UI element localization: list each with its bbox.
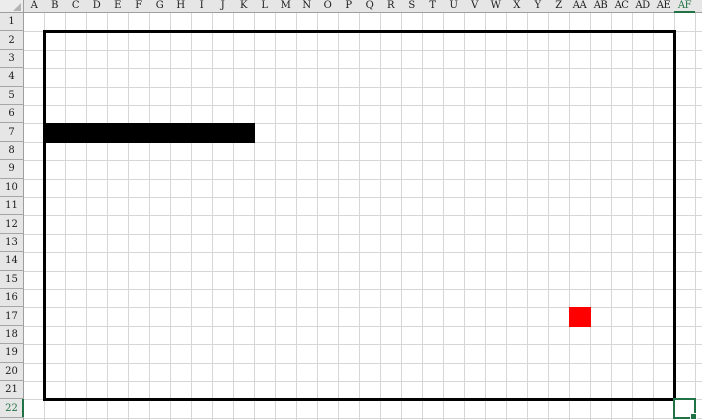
- gridline-horizontal: [24, 234, 702, 235]
- gridline-vertical: [590, 13, 591, 420]
- gridline-vertical: [107, 13, 108, 420]
- column-header-E[interactable]: E: [107, 0, 129, 13]
- gridline-vertical: [548, 13, 549, 420]
- snake-cell-F7[interactable]: [128, 123, 150, 142]
- column-header-G[interactable]: G: [149, 0, 171, 13]
- spreadsheet: ABCDEFGHIJKLMNOPQRSTUVWXYZAAABACADAEAF 1…: [0, 0, 702, 420]
- row-header-7[interactable]: 7: [0, 123, 24, 141]
- gridline-vertical: [254, 13, 255, 420]
- gridline-vertical: [359, 13, 360, 420]
- gridline-vertical: [212, 13, 213, 420]
- column-header-C[interactable]: C: [65, 0, 87, 13]
- gridline-horizontal: [24, 344, 702, 345]
- gridline-vertical: [611, 13, 612, 420]
- gridline-horizontal: [24, 160, 702, 161]
- gridline-horizontal: [24, 399, 702, 400]
- row-header-12[interactable]: 12: [0, 215, 24, 233]
- gridline-vertical: [632, 13, 633, 420]
- gridline-vertical: [170, 13, 171, 420]
- selected-cell-AF22[interactable]: [673, 398, 696, 418]
- column-header-J[interactable]: J: [212, 0, 234, 13]
- row-header-10[interactable]: 10: [0, 179, 24, 197]
- gridline-vertical: [422, 13, 423, 420]
- gridline-horizontal: [24, 326, 702, 327]
- column-header-T[interactable]: T: [422, 0, 444, 13]
- row-header-18[interactable]: 18: [0, 326, 24, 344]
- gridline-horizontal: [24, 197, 702, 198]
- gridline-vertical: [674, 13, 675, 420]
- gridline-vertical: [44, 13, 45, 420]
- row-header-14[interactable]: 14: [0, 252, 24, 270]
- column-header-R[interactable]: R: [380, 0, 402, 13]
- row-header-21[interactable]: 21: [0, 381, 24, 399]
- gridline-vertical: [233, 13, 234, 420]
- gridline-horizontal: [24, 418, 702, 419]
- row-header-5[interactable]: 5: [0, 87, 24, 105]
- gridline-horizontal: [24, 50, 702, 51]
- column-header-X[interactable]: X: [506, 0, 528, 13]
- column-header-P[interactable]: P: [338, 0, 360, 13]
- row-header-1[interactable]: 1: [0, 13, 24, 31]
- row-header-20[interactable]: 20: [0, 363, 24, 381]
- column-header-V[interactable]: V: [464, 0, 486, 13]
- column-header-H[interactable]: H: [170, 0, 192, 13]
- row-header-19[interactable]: 19: [0, 344, 24, 362]
- gridline-vertical: [317, 13, 318, 420]
- gridline-horizontal: [24, 179, 702, 180]
- gridline-vertical: [401, 13, 402, 420]
- column-header-AC[interactable]: AC: [611, 0, 633, 13]
- gridline-vertical: [275, 13, 276, 420]
- food-cell-AA17[interactable]: [569, 307, 591, 326]
- snake-cell-I7[interactable]: [191, 123, 213, 142]
- gridline-horizontal: [24, 307, 702, 308]
- fill-handle[interactable]: [690, 413, 697, 420]
- column-header-Z[interactable]: Z: [548, 0, 570, 13]
- gridline-vertical: [296, 13, 297, 420]
- row-header-17[interactable]: 17: [0, 307, 24, 325]
- row-header-11[interactable]: 11: [0, 197, 24, 215]
- column-header-B[interactable]: B: [44, 0, 66, 13]
- gridline-vertical: [695, 13, 696, 420]
- gridline-horizontal: [24, 105, 702, 106]
- row-header-13[interactable]: 13: [0, 234, 24, 252]
- gridline-vertical: [86, 13, 87, 420]
- column-header-Q[interactable]: Q: [359, 0, 381, 13]
- column-header-I[interactable]: I: [191, 0, 213, 13]
- snake-cell-K7[interactable]: [233, 123, 255, 142]
- gridline-vertical: [149, 13, 150, 420]
- gridline-vertical: [506, 13, 507, 420]
- snake-cell-B7[interactable]: [44, 123, 66, 142]
- gridline-horizontal: [24, 271, 702, 272]
- gridline-horizontal: [24, 87, 702, 88]
- select-all-triangle-icon: [13, 3, 21, 11]
- gridline-vertical: [338, 13, 339, 420]
- column-header-W[interactable]: W: [485, 0, 507, 13]
- column-header-AB[interactable]: AB: [590, 0, 612, 13]
- row-header-3[interactable]: 3: [0, 50, 24, 68]
- column-header-U[interactable]: U: [443, 0, 465, 13]
- column-header-D[interactable]: D: [86, 0, 108, 13]
- row-header-22[interactable]: 22: [0, 399, 24, 417]
- gridline-vertical: [527, 13, 528, 420]
- snake-cell-G7[interactable]: [149, 123, 171, 142]
- row-header-16[interactable]: 16: [0, 289, 24, 307]
- row-header-2[interactable]: 2: [0, 31, 24, 49]
- column-header-AA[interactable]: AA: [569, 0, 591, 13]
- snake-cell-H7[interactable]: [170, 123, 192, 142]
- column-header-AF[interactable]: AF: [674, 0, 696, 13]
- column-header-AE[interactable]: AE: [653, 0, 675, 13]
- gridline-vertical: [191, 13, 192, 420]
- snake-cell-J7[interactable]: [212, 123, 234, 142]
- column-header-A[interactable]: A: [24, 0, 45, 13]
- row-header-4[interactable]: 4: [0, 68, 24, 86]
- row-header-9[interactable]: 9: [0, 160, 24, 178]
- column-header-AD[interactable]: AD: [632, 0, 654, 13]
- gridline-vertical: [485, 13, 486, 420]
- gridline-vertical: [443, 13, 444, 420]
- gridline-horizontal: [24, 381, 702, 382]
- gridline-horizontal: [24, 68, 702, 69]
- gridline-horizontal: [24, 215, 702, 216]
- select-all-corner[interactable]: [0, 0, 24, 13]
- gridline-vertical: [128, 13, 129, 420]
- column-header-filler: [695, 0, 702, 13]
- column-header-K[interactable]: K: [233, 0, 255, 13]
- snake-cell-E7[interactable]: [107, 123, 129, 142]
- gridline-vertical: [380, 13, 381, 420]
- snake-cell-C7[interactable]: [65, 123, 87, 142]
- column-header-S[interactable]: S: [401, 0, 423, 13]
- column-header-O[interactable]: O: [317, 0, 339, 13]
- gridline-vertical: [464, 13, 465, 420]
- row-header-8[interactable]: 8: [0, 142, 24, 160]
- gridline-horizontal: [24, 252, 702, 253]
- gridline-horizontal: [24, 289, 702, 290]
- column-header-N[interactable]: N: [296, 0, 318, 13]
- gridline-horizontal: [24, 31, 702, 32]
- gridline-vertical: [653, 13, 654, 420]
- column-header-L[interactable]: L: [254, 0, 276, 13]
- gridline-vertical: [65, 13, 66, 420]
- column-header-Y[interactable]: Y: [527, 0, 549, 13]
- gridline-horizontal: [24, 363, 702, 364]
- row-header-6[interactable]: 6: [0, 105, 24, 123]
- gridline-vertical: [569, 13, 570, 420]
- column-header-M[interactable]: M: [275, 0, 297, 13]
- column-header-F[interactable]: F: [128, 0, 150, 13]
- row-header-15[interactable]: 15: [0, 271, 24, 289]
- snake-cell-D7[interactable]: [86, 123, 108, 142]
